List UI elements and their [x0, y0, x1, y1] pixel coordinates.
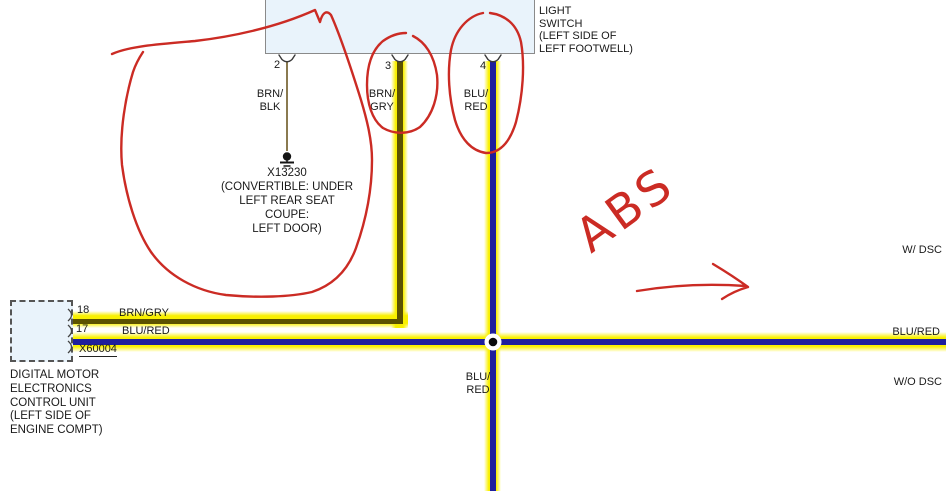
pin-2-connector-icon	[279, 55, 295, 62]
ground-symbol-icon	[280, 152, 294, 166]
dme-wire-blu-red-label: BLU/RED	[122, 325, 170, 338]
annotation-overlay: ABS	[0, 0, 946, 491]
dme-pin-18-label: 18	[77, 304, 89, 317]
switch-pin-4-label: 4	[480, 60, 486, 73]
wiring-diagram: BRAKE LIGHT SWITCH (LEFT SIDE OF LEFT FO…	[0, 0, 946, 491]
wire-brn-blk-label: BRN/ BLK	[245, 88, 295, 114]
junction-wire-label: BLU/ RED	[453, 371, 503, 397]
dme-connector-label: X60004	[79, 343, 117, 357]
wire-blu-red-vertical	[490, 61, 496, 491]
switch-pin-3-label: 3	[385, 60, 391, 73]
with-dsc-label: W/ DSC	[902, 244, 942, 257]
ground-label: X13230 (CONVERTIBLE: UNDER LEFT REAR SEA…	[172, 166, 402, 236]
wire-brn-gry-label: BRN/ GRY	[357, 88, 407, 114]
wire-blu-red-horizontal	[73, 339, 946, 345]
switch-pin-2-label: 2	[274, 59, 280, 72]
wire-brn-gry-horizontal	[73, 319, 403, 324]
without-dsc-label: W/O DSC	[894, 376, 942, 389]
abs-annotation: ABS	[566, 155, 686, 263]
dme-name: DIGITAL MOTOR ELECTRONICS CONTROL UNIT (…	[10, 369, 103, 438]
right-wire-blu-red-label: BLU/RED	[892, 326, 940, 339]
brake-light-switch-box	[265, 0, 535, 54]
wire-blu-red-label: BLU/ RED	[451, 88, 501, 114]
dme-connector-text: X60004	[79, 343, 117, 357]
dme-pin-17-label: 17	[76, 323, 88, 336]
dme-control-unit-box	[10, 300, 73, 362]
switch-title: LIGHT SWITCH (LEFT SIDE OF LEFT FOOTWELL…	[539, 5, 633, 55]
switch-title-partial: BRAKE	[539, 0, 576, 4]
dme-wire-brn-gry-label: BRN/GRY	[119, 307, 169, 320]
red-arrow-annotation	[637, 264, 748, 299]
